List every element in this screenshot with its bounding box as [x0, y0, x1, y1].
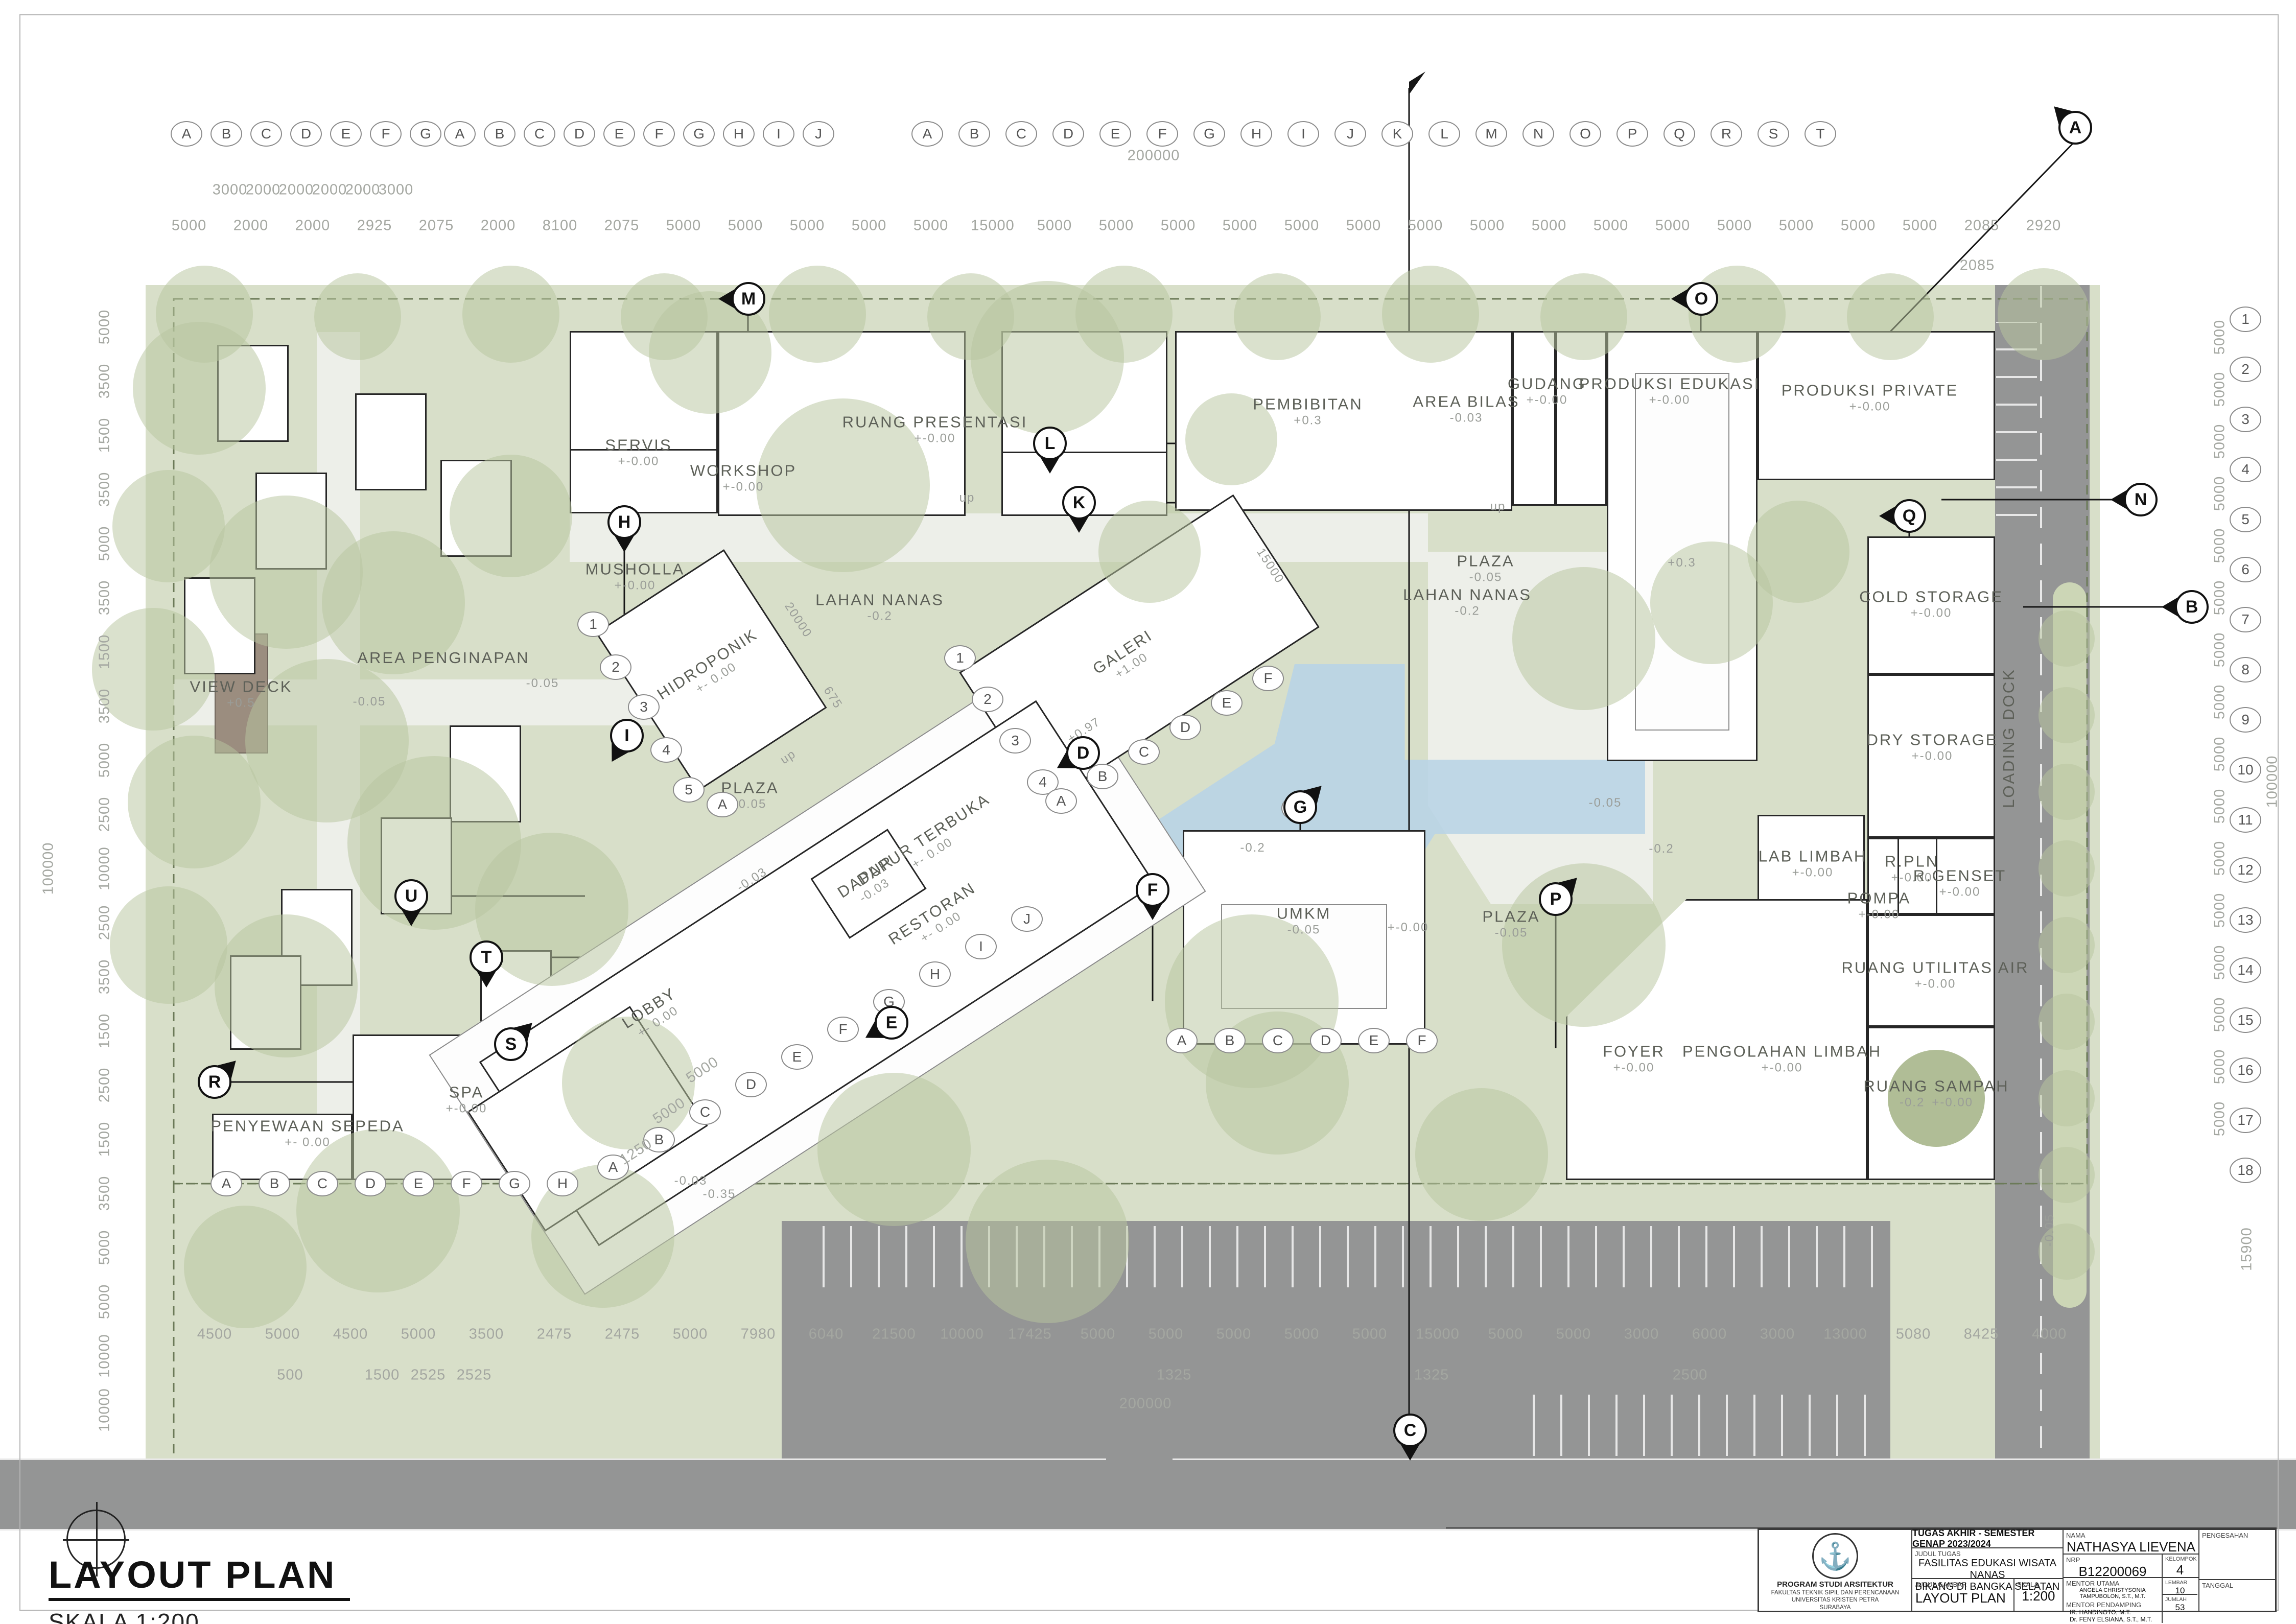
room-label: SERVIS+-0.00 — [605, 436, 672, 468]
dimension-text: 3500 — [469, 1326, 504, 1343]
section-marker: N — [2124, 483, 2158, 516]
grid-bubble: G — [683, 121, 715, 147]
tree-canopy — [971, 281, 1124, 434]
dimension-text: 2500 — [1673, 1367, 1708, 1384]
grid-bubble: F — [1406, 1028, 1438, 1053]
dimension-text: 5000 — [666, 218, 701, 234]
tree-canopy — [1382, 266, 1479, 363]
dimension-text: 2920 — [2026, 218, 2061, 234]
grid-bubble: F — [370, 121, 402, 147]
dimension-text: 5000 — [1099, 218, 1134, 234]
dimension-text: 5000 — [2212, 476, 2229, 511]
grid-bubble: 1 — [2230, 307, 2261, 332]
dimension-text: 100000 — [40, 842, 57, 895]
section-marker: A — [2058, 111, 2092, 145]
grid-bubble: 13 — [2230, 907, 2261, 933]
tree-canopy — [769, 266, 866, 363]
dimension-text: 1500 — [97, 1122, 113, 1157]
section-marker-label: A — [2058, 111, 2092, 145]
dimension-text: 5000 — [2212, 737, 2229, 772]
dimension-text: 5000 — [1717, 218, 1752, 234]
dimension-text: 200000 — [1119, 1396, 1172, 1413]
grid-bubble: E — [1211, 690, 1243, 716]
institution-name: PROGRAM STUDI ARSITEKTUR — [1759, 1580, 1911, 1589]
dimension-text: 5000 — [2212, 789, 2229, 824]
dimension-text: 3500 — [97, 1176, 113, 1211]
tree-canopy — [184, 1206, 307, 1328]
room-elevation: +-0.00 — [690, 480, 796, 494]
titleblock-logo-cell: ⚓ PROGRAM STUDI ARSITEKTUR FAKULTAS TEKN… — [1759, 1530, 1912, 1611]
dimension-text: 15000 — [1416, 1326, 1460, 1343]
dimension-text: 2500 — [97, 797, 113, 832]
grid-bubble: 3 — [2230, 407, 2261, 432]
dimension-text: 5000 — [673, 1326, 708, 1343]
title-block: ⚓ PROGRAM STUDI ARSITEKTUR FAKULTAS TEKN… — [1758, 1528, 2277, 1612]
room-label: LAB LIMBAH+-0.00 — [1759, 847, 1867, 879]
room-elevation: +-0.00 — [446, 1101, 487, 1116]
grid-bubble: B — [484, 121, 516, 147]
grid-bubble: F — [1146, 121, 1178, 147]
grid-bubble: M — [1475, 121, 1507, 147]
grid-bubble: I — [763, 121, 794, 147]
grid-bubble: E — [330, 121, 362, 147]
grid-bubble: 7 — [2230, 607, 2261, 632]
dimension-text: 1500 — [365, 1367, 400, 1384]
grid-bubble: F — [1252, 666, 1284, 691]
dimension-text: 15900 — [2239, 1227, 2256, 1271]
tree-canopy — [133, 322, 266, 455]
dimension-text: 5000 — [2212, 580, 2229, 616]
room-elevation: +-0.00 — [585, 578, 685, 593]
grid-bubble: F — [643, 121, 675, 147]
dimension-text: 1325 — [1157, 1367, 1192, 1384]
grid-bubble: B — [259, 1171, 290, 1196]
grid-bubble: C — [1005, 121, 1037, 147]
room-elevation: +-0.00 — [1913, 885, 2006, 899]
grid-bubble: E — [781, 1044, 813, 1070]
room-elevation: +- 0.00 — [210, 1135, 404, 1149]
tree-canopy — [462, 266, 559, 363]
dimension-text: 2000 — [481, 218, 516, 234]
grid-bubble: D — [1310, 1028, 1342, 1053]
grid-bubble: H — [919, 961, 951, 987]
lembar-value: 10 — [2163, 1586, 2197, 1596]
dimension-text: 2475 — [605, 1326, 640, 1343]
dimension-text: 2000 — [345, 182, 381, 199]
room-label: RUANG UTILITAS AIR+-0.00 — [1842, 958, 2029, 991]
grid-bubble: E — [1099, 121, 1131, 147]
tree-canopy — [2039, 1147, 2095, 1203]
room-label: GUDANG+-0.00 — [1508, 374, 1586, 407]
grid-bubble: A — [707, 792, 738, 817]
section-marker-label: N — [2124, 483, 2158, 516]
grid-bubble: D — [355, 1171, 386, 1196]
grid-bubble: J — [803, 121, 834, 147]
dimension-text: 5000 — [97, 1284, 113, 1320]
annotation: -0.03 — [674, 1174, 708, 1188]
dimension-text: 5000 — [852, 218, 887, 234]
dimension-text: 5000 — [265, 1326, 300, 1343]
grid-bubble: I — [1287, 121, 1319, 147]
room-elevation: +0.5 — [190, 696, 293, 710]
grid-bubble: A — [444, 121, 476, 147]
room-label: WORKSHOP+-0.00 — [690, 461, 796, 493]
mentor-pendamping2: Dr. FENY ELSIANA, S.T., M.T. — [2064, 1616, 2162, 1623]
dimension-text: 5000 — [1284, 218, 1320, 234]
dimension-text: 4500 — [333, 1326, 368, 1343]
dimension-text: 5000 — [2212, 841, 2229, 876]
dimension-text: 5000 — [2212, 372, 2229, 407]
room-elevation: +-0.00 — [1759, 865, 1867, 880]
room-label: PEMBIBITAN+0.3 — [1253, 395, 1363, 427]
mentor-pendamping1: IR. HANDINOTO, M.T. — [2064, 1609, 2162, 1616]
grid-bubble: D — [1169, 715, 1201, 740]
dimension-text: 5000 — [1223, 218, 1258, 234]
dimension-text: 5000 — [1556, 1326, 1591, 1343]
dimension-text: 2075 — [604, 218, 640, 234]
section-marker-label: P — [1539, 882, 1573, 916]
section-marker: F — [1136, 873, 1169, 907]
grid-bubble: 9 — [2230, 707, 2261, 733]
section-marker: S — [494, 1027, 528, 1061]
dimension-text: 8425 — [1964, 1326, 1999, 1343]
mentor-utama-value: ANGELA CHRISTYSONIA TAMPUBOLON, S.T., M.… — [2064, 1587, 2162, 1599]
judul-tugas-line1: FASILITAS EDUKASI WISATA NANAS — [1912, 1558, 2063, 1581]
room-label: PRODUKSI EDUKASI+-0.00 — [1579, 374, 1761, 407]
section-marker: M — [732, 282, 765, 316]
grid-bubble: N — [1522, 121, 1554, 147]
dimension-text: 5000 — [1216, 1326, 1252, 1343]
dimension-text: 5000 — [2212, 893, 2229, 928]
grid-bubble: 3 — [628, 694, 660, 720]
section-marker-label: U — [394, 879, 428, 913]
room-label: PLAZA-0.05 — [1457, 552, 1514, 584]
institution-city: SURABAYA — [1759, 1604, 1911, 1611]
room-label: POMPA+-0.00 — [1847, 889, 1911, 921]
dimension-text: 200000 — [1128, 148, 1180, 164]
dimension-text: 5000 — [790, 218, 825, 234]
section-marker: P — [1539, 882, 1573, 916]
tree-canopy — [1234, 273, 1321, 360]
room-elevation: -0.05 — [1482, 926, 1540, 940]
dimension-text: 6040 — [809, 1326, 844, 1343]
tree-canopy — [817, 1073, 971, 1226]
dimension-text: 5000 — [2212, 685, 2229, 720]
dimension-text: 5000 — [1532, 218, 1567, 234]
dimension-text: 2085 — [1960, 257, 1995, 274]
room-label: VIEW DECK+0.5 — [190, 677, 293, 710]
grid-bubble: P — [1616, 121, 1648, 147]
room-elevation: +-0.00 — [1603, 1061, 1665, 1075]
dimension-text: 2000 — [233, 218, 269, 234]
grid-bubble: D — [290, 121, 322, 147]
dimension-text: 5000 — [728, 218, 763, 234]
institution-faculty: FAKULTAS TEKNIK SIPIL DAN PERENCANAAN — [1759, 1589, 1911, 1596]
grid-bubble: C — [1262, 1028, 1294, 1053]
kelompok-value: 4 — [2163, 1562, 2197, 1578]
dimension-text: 5000 — [1161, 218, 1196, 234]
room-elevation: -0.05 — [1277, 923, 1331, 937]
dimension-text: 7980 — [741, 1326, 776, 1343]
dimension-text: 5000 — [2212, 632, 2229, 668]
grid-bubble: B — [958, 121, 990, 147]
tree-canopy — [1998, 268, 2090, 360]
tree-canopy — [2039, 764, 2095, 820]
section-marker: I — [610, 719, 644, 752]
section-marker: Q — [1892, 499, 1926, 533]
grid-bubble: J — [1334, 121, 1366, 147]
grid-bubble: B — [210, 121, 242, 147]
tree-canopy — [1415, 1088, 1548, 1221]
room-elevation: +-0.00 — [1782, 399, 1959, 414]
section-marker-label: T — [470, 940, 503, 974]
section-marker: E — [875, 1006, 908, 1040]
annotation: up — [778, 747, 799, 767]
tree-canopy — [1540, 273, 1627, 360]
grid-bubble: 2 — [600, 654, 631, 680]
titleblock-project-col: TUGAS AKHIR - SEMESTER GENAP 2023/2024 J… — [1912, 1530, 2064, 1611]
pengesahan-label: PENGESAHAN — [2199, 1530, 2275, 1539]
tree-canopy — [2039, 610, 2095, 667]
dimension-text: 5000 — [913, 218, 949, 234]
annotation: up — [959, 491, 975, 505]
room-label: SPA+-0.00 — [446, 1083, 487, 1115]
section-marker-label: L — [1033, 427, 1067, 460]
grid-bubble: E — [403, 1171, 434, 1196]
section-marker-label: M — [732, 282, 765, 316]
grid-bubble: B — [1214, 1028, 1246, 1053]
section-marker-label: O — [1684, 282, 1718, 316]
tree-canopy — [2039, 994, 2095, 1050]
room-label: AREA BILAS-0.03 — [1413, 392, 1519, 425]
tree-canopy — [128, 736, 261, 868]
dimension-text: 2075 — [419, 218, 454, 234]
grid-bubble: C — [250, 121, 282, 147]
annotation: -0.2 — [1240, 841, 1265, 855]
dimension-text: 17425 — [1008, 1326, 1052, 1343]
grid-bubble: 10 — [2230, 757, 2261, 783]
dimension-text: 1500 — [97, 418, 113, 453]
room-label: RUANG SAMPAH-0.2 +-0.00 — [1863, 1077, 2009, 1109]
room-label: UMKM-0.05 — [1277, 904, 1331, 936]
grid-bubble: 15 — [2230, 1007, 2261, 1033]
dimension-text: 13000 — [1823, 1326, 1867, 1343]
room-label: PRODUKSI PRIVATE+-0.00 — [1782, 381, 1959, 413]
grid-bubble: H — [547, 1171, 578, 1196]
grid-bubble: G — [1193, 121, 1225, 147]
annotation: -0.05 — [526, 676, 559, 691]
dimension-text: 5000 — [2212, 1049, 2229, 1085]
dimension-text: 3500 — [97, 959, 113, 995]
room-elevation: -0.2 +-0.00 — [1863, 1095, 2009, 1110]
tree-canopy — [2039, 1070, 2095, 1126]
annotation: +-0.00 — [1388, 921, 1429, 935]
grid-bubble: 4 — [2230, 457, 2261, 482]
section-marker: L — [1033, 427, 1067, 460]
dimension-text: 2500 — [97, 1068, 113, 1103]
dimension-text: 21500 — [872, 1326, 916, 1343]
tree-canopy — [1098, 501, 1201, 603]
grid-bubble: F — [827, 1017, 859, 1042]
section-marker: T — [470, 940, 503, 974]
section-marker: K — [1062, 486, 1096, 520]
dimension-text: 3000 — [213, 182, 248, 199]
grid-bubble: 8 — [2230, 657, 2261, 682]
dimension-text: 8100 — [543, 218, 578, 234]
room-elevation: +-0.00 — [842, 431, 1028, 445]
room-elevation: +-0.00 — [1682, 1061, 1882, 1075]
dimension-text: 5000 — [2212, 945, 2229, 980]
dimension-text: 3500 — [97, 689, 113, 724]
room-label: MUSHOLLA+-0.00 — [585, 560, 685, 592]
tree-canopy — [112, 470, 225, 582]
section-marker-label: C — [1393, 1414, 1427, 1447]
titleblock-student-col: NAMA NATHASYA LIEVENA NRP B12200069 KELO… — [2064, 1530, 2199, 1611]
grid-bubble: 2 — [2230, 357, 2261, 382]
section-marker: B — [2175, 590, 2209, 624]
grid-bubble: 2 — [972, 687, 1003, 712]
dimension-text: 5000 — [1408, 218, 1443, 234]
grid-bubble: J — [1011, 906, 1043, 932]
room-label: PENYEWAAN SEPEDA+- 0.00 — [210, 1117, 404, 1149]
section-marker-label: S — [494, 1027, 528, 1061]
dimension-text: 5000 — [1655, 218, 1691, 234]
dimension-text: 100000 — [2264, 756, 2281, 808]
dimension-text: 3000 — [1624, 1326, 1659, 1343]
annotation: -0.05 — [2043, 1214, 2057, 1247]
scale-label: SKALA 1:200 — [49, 1608, 200, 1624]
room-elevation: -0.03 — [1413, 411, 1519, 425]
room-label: LAHAN NANAS-0.2 — [1403, 585, 1532, 618]
institution-university: UNIVERSITAS KRISTEN PETRA — [1759, 1596, 1911, 1604]
room-label: PENGOLAHAN LIMBAH+-0.00 — [1682, 1042, 1882, 1074]
grid-bubble: C — [307, 1171, 338, 1196]
grid-bubble: G — [410, 121, 441, 147]
room-elevation: +-0.00 — [605, 454, 672, 468]
section-marker-label: E — [875, 1006, 908, 1040]
grid-bubble: I — [965, 934, 997, 959]
section-marker: C — [1393, 1414, 1427, 1447]
dimension-text: 3500 — [97, 472, 113, 507]
dimension-text: 3500 — [97, 364, 113, 399]
drawing-sheet: SERVIS+-0.00MUSHOLLA+-0.00WORKSHOP+-0.00… — [0, 0, 2296, 1624]
tree-canopy — [1512, 567, 1655, 710]
dimension-text: 5000 — [1037, 218, 1072, 234]
dimension-text: 5000 — [2212, 424, 2229, 459]
dimension-text: 5000 — [2212, 997, 2229, 1032]
judul-tugas-label: JUDUL TUGAS — [1912, 1548, 2063, 1558]
room-elevation: +-0.00 — [1847, 907, 1911, 922]
grid-bubble: C — [689, 1099, 721, 1125]
dimension-text: 5000 — [1284, 1326, 1320, 1343]
room-label: LOADING DOCK — [2000, 668, 2018, 808]
grid-bubble: 14 — [2230, 957, 2261, 983]
section-marker-label: D — [1066, 736, 1100, 770]
dimension-text: 5000 — [1903, 218, 1938, 234]
dimension-text: 10000 — [940, 1326, 984, 1343]
dimension-text: 5000 — [97, 743, 113, 778]
dimension-text: 5000 — [1488, 1326, 1524, 1343]
grid-bubble: C — [1128, 739, 1160, 765]
grid-bubble: R — [1711, 121, 1742, 147]
dimension-text: 2000 — [246, 182, 281, 199]
building — [355, 393, 427, 490]
grid-bubble: O — [1569, 121, 1601, 147]
annotation: -0.2 — [1649, 842, 1674, 856]
section-marker: R — [198, 1065, 231, 1099]
dimension-text: 5000 — [2212, 1101, 2229, 1137]
room-label: COLD STORAGE+-0.00 — [1859, 587, 2003, 620]
dimension-text: 2000 — [295, 218, 331, 234]
annotation: -0.05 — [1589, 796, 1622, 810]
section-marker: H — [607, 505, 641, 539]
grid-bubble: 5 — [673, 777, 705, 803]
room-label: DRY STORAGE+-0.00 — [1867, 731, 1998, 763]
grid-bubble: 16 — [2230, 1057, 2261, 1083]
annotation: -0.35 — [703, 1187, 736, 1202]
grid-bubble: 5 — [2230, 507, 2261, 532]
room-label: R.GENSET+-0.00 — [1913, 866, 2006, 899]
jumlah-label: JUMLAH — [2163, 1595, 2197, 1603]
dimension-text: 500 — [277, 1367, 303, 1384]
dimension-text: 5000 — [2212, 320, 2229, 355]
grid-bubble: 4 — [650, 737, 682, 763]
dimension-text: 5000 — [1149, 1326, 1184, 1343]
university-logo-icon: ⚓ — [1812, 1533, 1858, 1579]
grid-bubble: A — [911, 121, 943, 147]
grid-bubble: 12 — [2230, 857, 2261, 883]
grid-bubble: A — [171, 121, 202, 147]
dimension-text: 5000 — [1081, 1326, 1116, 1343]
kelompok-label: KELOMPOK — [2163, 1555, 2197, 1562]
grid-bubble: 18 — [2230, 1158, 2261, 1183]
nama-label: NAMA — [2064, 1530, 2198, 1539]
dimension-text: 4500 — [197, 1326, 232, 1343]
dimension-text: 2000 — [312, 182, 347, 199]
tree-canopy — [2039, 687, 2095, 743]
dimension-text: 2000 — [279, 182, 314, 199]
dimension-text: 5000 — [2212, 528, 2229, 563]
dimension-text: 3500 — [97, 580, 113, 616]
tree-canopy — [2039, 840, 2095, 897]
section-marker: U — [394, 879, 428, 913]
mentor-pendamping-label: MENTOR PENDAMPING — [2064, 1599, 2162, 1609]
tree-canopy — [966, 1160, 1129, 1323]
grid-bubble: A — [1045, 788, 1077, 814]
dimension-text: 1325 — [1414, 1367, 1449, 1384]
dimension-text: 3000 — [1760, 1326, 1795, 1343]
grid-bubble: E — [603, 121, 635, 147]
grid-bubble: Q — [1664, 121, 1695, 147]
grid-bubble: S — [1758, 121, 1789, 147]
title-underline — [49, 1598, 350, 1601]
grid-bubble: E — [1358, 1028, 1390, 1053]
nama-value: NATHASYA LIEVENA — [2064, 1539, 2198, 1555]
judul-tugas-line2: BIKANG DI BANGKA SELATAN — [1912, 1581, 2063, 1593]
grid-bubble: A — [210, 1171, 242, 1196]
grid-bubble: K — [1381, 121, 1413, 147]
section-marker-label: H — [607, 505, 641, 539]
grid-bubble: H — [723, 121, 755, 147]
room-label: LAHAN NANAS-0.2 — [815, 591, 944, 623]
section-marker-label: R — [198, 1065, 231, 1099]
tree-canopy — [1502, 863, 1666, 1027]
section-marker-label: I — [610, 719, 644, 752]
titleblock-approval-col: PENGESAHAN TANGGAL — [2199, 1530, 2275, 1611]
grid-bubble: 6 — [2230, 557, 2261, 582]
dimension-text: 5000 — [1470, 218, 1505, 234]
dimension-text: 5000 — [1352, 1326, 1388, 1343]
